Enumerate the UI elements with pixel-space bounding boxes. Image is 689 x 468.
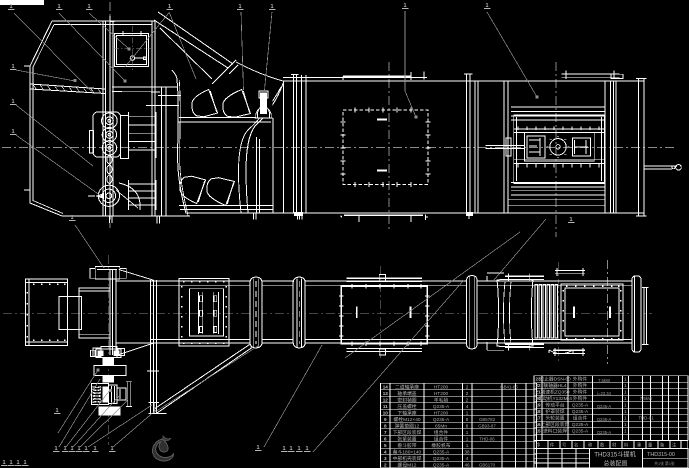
svg-text:外购件: 外购件 xyxy=(573,395,588,402)
svg-text:Q235-A: Q235-A xyxy=(433,462,450,468)
svg-text:7.5kW: 7.5kW xyxy=(598,378,610,383)
svg-text:7.5kW: 7.5kW xyxy=(640,396,653,401)
svg-text:1: 1 xyxy=(624,403,627,408)
svg-text:1: 1 xyxy=(466,436,469,441)
svg-text:4: 4 xyxy=(384,449,387,454)
svg-text:注: 注 xyxy=(672,442,677,449)
svg-text:12: 12 xyxy=(383,397,389,402)
svg-text:4: 4 xyxy=(466,404,469,409)
svg-text:18: 18 xyxy=(535,409,541,414)
svg-text:1: 1 xyxy=(624,409,627,414)
svg-text:材: 材 xyxy=(612,442,617,448)
svg-text:10: 10 xyxy=(383,410,389,415)
svg-text:重: 重 xyxy=(637,442,642,448)
svg-text:9: 9 xyxy=(384,417,387,422)
svg-text:压盖螺栓: 压盖螺栓 xyxy=(397,403,416,410)
svg-text:逆止器DSN-60: 逆止器DSN-60 xyxy=(539,376,571,383)
svg-text:THD-01: THD-01 xyxy=(638,416,654,421)
svg-text:22: 22 xyxy=(535,383,541,388)
svg-text:GB41-86: GB41-86 xyxy=(500,384,518,389)
svg-text:称: 称 xyxy=(588,442,593,449)
svg-text:8: 8 xyxy=(466,423,469,428)
svg-text:名: 名 xyxy=(574,442,578,449)
svg-text:5: 5 xyxy=(384,443,387,448)
svg-text:8: 8 xyxy=(466,417,469,422)
svg-text:1: 1 xyxy=(624,422,627,427)
svg-text:二道轴承座: 二道轴承座 xyxy=(395,383,419,390)
svg-text:Q235-A: Q235-A xyxy=(572,409,589,415)
svg-text:减速机ZQ350: 减速机ZQ350 xyxy=(540,389,569,396)
svg-text:2: 2 xyxy=(384,462,387,467)
svg-text:15: 15 xyxy=(535,429,541,434)
svg-text:17: 17 xyxy=(535,416,541,421)
svg-text:畚斗180×140: 畚斗180×140 xyxy=(393,448,422,455)
svg-text:料: 料 xyxy=(624,442,629,449)
svg-text:2: 2 xyxy=(466,391,469,396)
svg-text:组合件: 组合件 xyxy=(573,415,588,422)
svg-text:THD315-00: THD315-00 xyxy=(647,452,675,458)
svg-text:数: 数 xyxy=(600,442,605,449)
svg-text:共1张 第1张: 共1张 第1张 xyxy=(654,461,675,466)
svg-text:Q235-A: Q235-A xyxy=(433,449,450,455)
svg-text:HT200: HT200 xyxy=(434,384,449,390)
svg-text:外购件: 外购件 xyxy=(573,376,588,383)
svg-text:2: 2 xyxy=(466,384,469,389)
svg-text:护罩装焊: 护罩装焊 xyxy=(545,408,564,415)
svg-text:备: 备 xyxy=(660,442,665,449)
svg-text:13: 13 xyxy=(383,391,389,396)
svg-text:i=23.34: i=23.34 xyxy=(597,391,612,396)
svg-text:外购件: 外购件 xyxy=(573,382,588,389)
svg-text:Q235-A: Q235-A xyxy=(433,417,450,423)
svg-text:Q235-A: Q235-A xyxy=(597,417,612,422)
svg-text:Q235-A: Q235-A xyxy=(433,456,450,462)
svg-text:下轴承座: 下轴承座 xyxy=(397,409,416,416)
svg-text:1: 1 xyxy=(624,429,627,434)
svg-text:橡胶帆布: 橡胶帆布 xyxy=(431,442,450,449)
svg-text:1: 1 xyxy=(624,396,627,401)
svg-text:7: 7 xyxy=(384,430,387,435)
svg-text:8: 8 xyxy=(384,423,387,428)
svg-text:密封毡圈: 密封毡圈 xyxy=(397,396,416,403)
svg-text:联轴器HL4: 联轴器HL4 xyxy=(543,382,567,389)
svg-text:量: 量 xyxy=(648,442,653,449)
svg-text:3: 3 xyxy=(384,456,387,461)
svg-text:外购件: 外购件 xyxy=(573,389,588,396)
svg-text:Q235-A: Q235-A xyxy=(433,404,450,410)
svg-text:组合件: 组合件 xyxy=(434,429,449,436)
svg-text:1: 1 xyxy=(624,383,627,388)
svg-text:4: 4 xyxy=(466,456,469,461)
svg-text:组合件: 组合件 xyxy=(434,435,449,442)
svg-text:Q235-A: Q235-A xyxy=(597,430,612,435)
svg-text:Q235-A: Q235-A xyxy=(572,422,589,428)
svg-text:Q235-A: Q235-A xyxy=(572,403,589,409)
svg-text:38: 38 xyxy=(464,449,470,454)
svg-text:头轮装置: 头轮装置 xyxy=(545,415,564,422)
svg-text:GB93-87: GB93-87 xyxy=(478,423,496,428)
svg-text:6: 6 xyxy=(384,436,387,441)
svg-text:HT200: HT200 xyxy=(434,391,449,397)
svg-text:进料口装焊: 进料口装焊 xyxy=(543,428,567,435)
svg-text:畚斗胶带: 畚斗胶带 xyxy=(397,442,416,449)
svg-text:件: 件 xyxy=(550,442,555,449)
svg-text:2: 2 xyxy=(466,397,469,402)
svg-text:1: 1 xyxy=(466,443,469,448)
svg-text:羊毛毡: 羊毛毡 xyxy=(434,396,449,403)
svg-text:电动机Y132M-4: 电动机Y132M-4 xyxy=(538,395,572,402)
svg-text:序: 序 xyxy=(536,442,541,449)
svg-text:GB5782: GB5782 xyxy=(479,417,496,422)
svg-text:46: 46 xyxy=(464,462,470,467)
svg-text:GB6170: GB6170 xyxy=(479,462,496,467)
svg-text:19: 19 xyxy=(535,403,541,408)
svg-text:HT200: HT200 xyxy=(434,410,449,416)
svg-text:Q235-A: Q235-A xyxy=(572,429,589,435)
svg-text:1: 1 xyxy=(466,410,469,415)
svg-text:弹簧垫圈12: 弹簧垫圈12 xyxy=(395,422,420,429)
svg-text:轴承端盖: 轴承端盖 xyxy=(397,390,416,397)
svg-text:上部区段装焊: 上部区段装焊 xyxy=(541,421,570,428)
svg-text:THD315斗提机: THD315斗提机 xyxy=(594,451,636,459)
svg-text:1: 1 xyxy=(466,430,469,435)
svg-text:65Mn: 65Mn xyxy=(435,423,447,429)
svg-text:中部机壳装焊: 中部机壳装焊 xyxy=(393,455,422,462)
svg-text:1: 1 xyxy=(624,377,627,382)
svg-text:螺栓M12×40: 螺栓M12×40 xyxy=(393,416,420,423)
svg-text:1: 1 xyxy=(624,416,627,421)
svg-text:下部区段装焊: 下部区段装焊 xyxy=(393,429,422,436)
svg-text:11: 11 xyxy=(383,404,388,409)
svg-text:总装配图: 总装配图 xyxy=(603,460,627,468)
svg-text:14: 14 xyxy=(383,384,389,389)
svg-text:传动平台: 传动平台 xyxy=(545,402,564,409)
svg-text:Q235-A: Q235-A xyxy=(597,404,612,409)
svg-text:1: 1 xyxy=(624,390,627,395)
svg-text:张紧装置: 张紧装置 xyxy=(397,435,416,442)
svg-text:THD-06: THD-06 xyxy=(479,436,495,441)
